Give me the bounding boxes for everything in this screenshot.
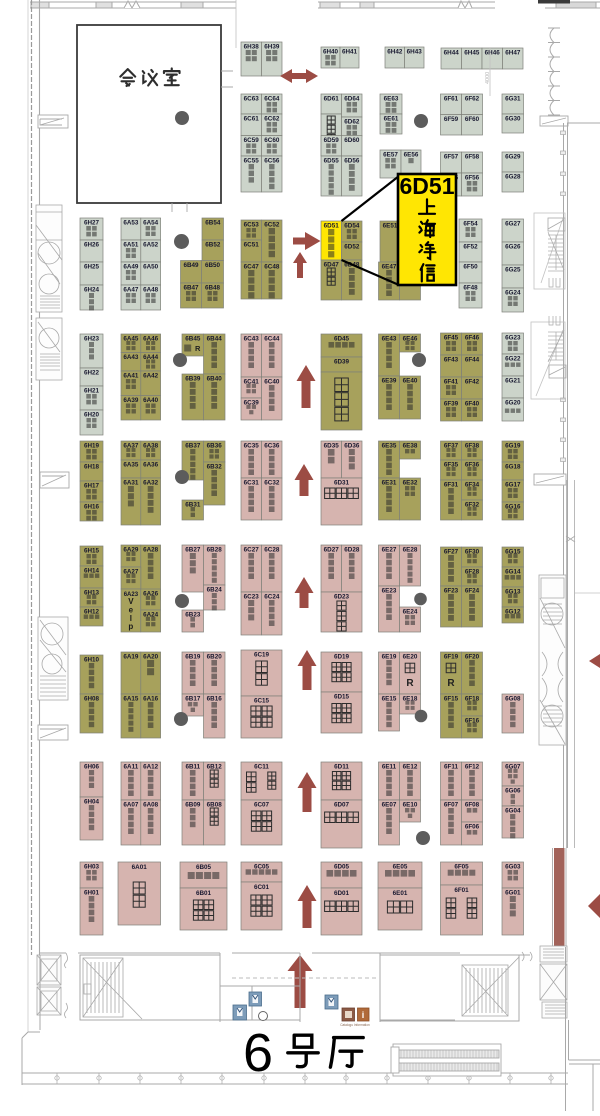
svg-text:6E12: 6E12 [403, 764, 418, 771]
svg-text:6H16: 6H16 [84, 504, 100, 511]
svg-text:6H14: 6H14 [84, 568, 100, 575]
svg-text:6D55: 6D55 [324, 158, 340, 165]
svg-text:6F52: 6F52 [463, 244, 478, 251]
svg-text:6G19: 6G19 [505, 443, 521, 450]
svg-text:6F37: 6F37 [444, 443, 459, 450]
svg-text:6F31: 6F31 [444, 482, 459, 489]
svg-text:6A32: 6A32 [143, 480, 159, 487]
svg-text:6C56: 6C56 [264, 158, 280, 165]
svg-text:6G14: 6G14 [505, 569, 521, 576]
svg-text:6B09: 6B09 [185, 802, 201, 809]
svg-text:6G08: 6G08 [505, 696, 521, 703]
svg-text:6E28: 6E28 [403, 547, 418, 554]
svg-text:6F27: 6F27 [444, 549, 459, 556]
svg-text:6E39: 6E39 [382, 378, 397, 385]
svg-text:6H45: 6H45 [464, 50, 480, 57]
svg-text:6F32: 6F32 [465, 502, 480, 509]
svg-text:6B27: 6B27 [185, 547, 201, 554]
svg-text:6C11: 6C11 [254, 764, 269, 771]
svg-text:6A50: 6A50 [143, 264, 159, 271]
svg-text:6D19: 6D19 [334, 654, 350, 661]
svg-text:6B11: 6B11 [185, 764, 200, 771]
svg-text:6E40: 6E40 [403, 378, 418, 385]
svg-text:6C01: 6C01 [254, 884, 270, 891]
svg-text:6B50: 6B50 [205, 262, 221, 269]
svg-text:6C62: 6C62 [264, 116, 280, 123]
svg-text:6G25: 6G25 [505, 267, 521, 274]
svg-text:6E32: 6E32 [403, 480, 418, 487]
svg-text:6H08: 6H08 [84, 696, 100, 703]
svg-text:6G07: 6G07 [505, 764, 521, 771]
svg-text:6D39: 6D39 [334, 359, 350, 366]
svg-text:6B16: 6B16 [207, 696, 223, 703]
svg-text:6A01: 6A01 [132, 864, 148, 871]
svg-text:6B37: 6B37 [185, 443, 201, 450]
svg-text:6H20: 6H20 [84, 412, 100, 419]
svg-text:6B49: 6B49 [183, 262, 199, 269]
svg-text:6F15: 6F15 [444, 696, 459, 703]
svg-text:6B48: 6B48 [205, 285, 221, 292]
svg-text:6C24: 6C24 [264, 594, 280, 601]
svg-text:6E05: 6E05 [393, 864, 408, 871]
svg-text:6C39: 6C39 [244, 400, 260, 407]
svg-text:6H25: 6H25 [84, 264, 100, 271]
svg-text:6B08: 6B08 [207, 802, 223, 809]
svg-text:6G24: 6G24 [505, 290, 521, 297]
svg-text:6A52: 6A52 [143, 242, 159, 249]
svg-text:6H03: 6H03 [84, 864, 100, 871]
svg-text:6D36: 6D36 [344, 443, 360, 450]
svg-text:6A53: 6A53 [123, 220, 139, 227]
svg-text:6G13: 6G13 [505, 589, 521, 596]
svg-text:6F19: 6F19 [444, 654, 459, 661]
svg-text:6A38: 6A38 [143, 443, 159, 450]
svg-text:6C41: 6C41 [244, 379, 260, 386]
svg-text:6B05: 6B05 [196, 864, 212, 871]
svg-text:6E11: 6E11 [382, 764, 397, 771]
svg-text:6B40: 6B40 [207, 376, 223, 383]
svg-text:6A15: 6A15 [123, 696, 139, 703]
svg-text:6A39: 6A39 [123, 397, 139, 404]
svg-text:6H47: 6H47 [505, 50, 521, 57]
svg-text:6F05: 6F05 [454, 864, 469, 871]
svg-text:6F30: 6F30 [465, 549, 480, 556]
svg-text:6H10: 6H10 [84, 657, 100, 664]
svg-text:6A41: 6A41 [123, 373, 139, 380]
svg-text:6A24: 6A24 [143, 612, 159, 619]
svg-text:6E57: 6E57 [383, 152, 398, 159]
svg-text:6H06: 6H06 [84, 764, 100, 771]
svg-text:6F18: 6F18 [465, 696, 480, 703]
svg-text:6H12: 6H12 [84, 609, 100, 616]
svg-text:6D35: 6D35 [324, 443, 340, 450]
svg-text:6C35: 6C35 [244, 443, 260, 450]
svg-text:6D05: 6D05 [334, 864, 350, 871]
svg-text:6A40: 6A40 [143, 397, 159, 404]
svg-text:6F20: 6F20 [465, 654, 480, 661]
svg-text:6F41: 6F41 [444, 379, 459, 386]
svg-text:6H26: 6H26 [84, 242, 100, 249]
svg-text:6F43: 6F43 [444, 357, 459, 364]
svg-text:6E46: 6E46 [403, 336, 418, 343]
svg-text:6F11: 6F11 [444, 764, 459, 771]
svg-text:6F06: 6F06 [465, 824, 480, 831]
svg-text:6H41: 6H41 [342, 49, 358, 56]
svg-text:6H38: 6H38 [244, 44, 260, 51]
svg-text:6E61: 6E61 [384, 116, 399, 123]
svg-text:6F23: 6F23 [444, 588, 459, 595]
svg-text:6C61: 6C61 [244, 116, 260, 123]
svg-text:6C60: 6C60 [264, 137, 280, 144]
svg-text:6F16: 6F16 [465, 718, 480, 725]
svg-text:6D54: 6D54 [344, 223, 360, 230]
svg-text:6E23: 6E23 [382, 588, 397, 595]
svg-text:6G31: 6G31 [505, 96, 521, 103]
svg-text:6C27: 6C27 [244, 547, 260, 554]
svg-text:6C52: 6C52 [264, 222, 280, 229]
svg-text:6D52: 6D52 [344, 244, 360, 251]
svg-text:6G22: 6G22 [505, 356, 521, 363]
svg-text:6C59: 6C59 [244, 137, 260, 144]
svg-text:6F36: 6F36 [465, 462, 480, 469]
svg-text:4000: 4000 [485, 72, 491, 84]
svg-text:6B20: 6B20 [207, 654, 223, 661]
svg-text:6D60: 6D60 [344, 137, 360, 144]
svg-text:6A12: 6A12 [143, 764, 159, 771]
svg-text:6D51: 6D51 [400, 173, 455, 199]
svg-text:6D23: 6D23 [334, 594, 350, 601]
svg-text:R: R [195, 344, 201, 353]
svg-text:6F46: 6F46 [465, 335, 480, 342]
svg-text:6F61: 6F61 [444, 96, 459, 103]
svg-text:6B32: 6B32 [207, 464, 223, 471]
svg-text:6F56: 6F56 [465, 175, 480, 182]
svg-text:6H40: 6H40 [323, 49, 339, 56]
svg-text:6D15: 6D15 [334, 694, 350, 701]
svg-text:6E24: 6E24 [403, 609, 418, 616]
svg-text:6C23: 6C23 [244, 594, 260, 601]
svg-text:6H46: 6H46 [485, 50, 501, 57]
svg-text:6A43: 6A43 [123, 354, 139, 361]
svg-text:6H44: 6H44 [444, 50, 460, 57]
svg-text:6H22: 6H22 [84, 370, 100, 377]
svg-text:6H27: 6H27 [84, 220, 100, 227]
svg-text:6F57: 6F57 [444, 154, 459, 161]
svg-text:6C31: 6C31 [244, 480, 260, 487]
svg-text:6E01: 6E01 [393, 890, 408, 897]
svg-text:6E51: 6E51 [383, 223, 398, 230]
svg-text:6E10: 6E10 [403, 802, 418, 809]
svg-text:6F58: 6F58 [465, 154, 480, 161]
svg-text:6G28: 6G28 [505, 174, 521, 181]
svg-text:6A47: 6A47 [123, 287, 139, 294]
svg-text:6B12: 6B12 [207, 764, 223, 771]
svg-text:6E56: 6E56 [404, 152, 419, 159]
svg-text:6H04: 6H04 [84, 799, 100, 806]
svg-text:6F07: 6F07 [444, 802, 459, 809]
svg-text:6C63: 6C63 [244, 96, 260, 103]
svg-text:6G17: 6G17 [505, 482, 521, 489]
svg-text:6A20: 6A20 [143, 654, 159, 661]
svg-text:6D61: 6D61 [324, 96, 340, 103]
svg-text:6F08: 6F08 [465, 802, 480, 809]
svg-text:6G26: 6G26 [505, 244, 521, 251]
svg-text:6H21: 6H21 [84, 388, 100, 395]
svg-text:6E27: 6E27 [382, 547, 397, 554]
svg-text:6H43: 6H43 [407, 49, 423, 56]
svg-text:6A07: 6A07 [123, 802, 139, 809]
svg-text:6A45: 6A45 [123, 336, 139, 343]
svg-text:6A08: 6A08 [143, 802, 159, 809]
svg-text:6F40: 6F40 [465, 401, 480, 408]
svg-text:6H23: 6H23 [84, 336, 100, 343]
svg-text:6H01: 6H01 [84, 890, 100, 897]
svg-text:6E31: 6E31 [382, 480, 397, 487]
svg-text:6A27: 6A27 [123, 569, 139, 576]
svg-text:6F39: 6F39 [444, 401, 459, 408]
svg-text:6F24: 6F24 [465, 588, 480, 595]
svg-text:6D59: 6D59 [324, 137, 340, 144]
svg-text:6A16: 6A16 [143, 696, 159, 703]
svg-text:6E18: 6E18 [403, 696, 418, 703]
svg-text:6D51: 6D51 [324, 223, 340, 230]
svg-text:6G21: 6G21 [505, 378, 521, 385]
svg-text:6C15: 6C15 [254, 698, 270, 705]
svg-text:6H18: 6H18 [84, 464, 100, 471]
svg-text:6C32: 6C32 [264, 480, 280, 487]
svg-text:6D31: 6D31 [334, 480, 350, 487]
svg-text:6G23: 6G23 [505, 335, 521, 342]
svg-text:Catalogu Information: Catalogu Information [340, 1023, 370, 1027]
svg-text:6G29: 6G29 [505, 154, 521, 161]
svg-text:6D56: 6D56 [344, 158, 360, 165]
svg-text:6G04: 6G04 [505, 808, 521, 815]
svg-text:6A51: 6A51 [123, 242, 139, 249]
svg-text:6A28: 6A28 [143, 547, 159, 554]
svg-text:6F28: 6F28 [465, 569, 480, 576]
svg-text:6E19: 6E19 [382, 654, 397, 661]
svg-text:6G06: 6G06 [505, 788, 521, 795]
svg-text:6H15: 6H15 [84, 548, 100, 555]
svg-text:6F48: 6F48 [463, 285, 478, 292]
svg-text:6A42: 6A42 [143, 373, 159, 380]
svg-text:6F45: 6F45 [444, 335, 459, 342]
svg-text:6E43: 6E43 [382, 336, 397, 343]
svg-text:6H17: 6H17 [84, 483, 100, 490]
svg-text:6A35: 6A35 [123, 462, 139, 469]
svg-text:6F50: 6F50 [463, 264, 478, 271]
svg-text:6C48: 6C48 [264, 264, 280, 271]
svg-text:6C19: 6C19 [254, 652, 270, 659]
svg-text:6C47: 6C47 [244, 264, 260, 271]
svg-text:6F60: 6F60 [465, 116, 480, 123]
svg-text:6F54: 6F54 [463, 221, 478, 228]
svg-text:6B44: 6B44 [207, 336, 223, 343]
svg-text:6B17: 6B17 [185, 696, 201, 703]
svg-text:6G18: 6G18 [505, 464, 521, 471]
svg-text:6B52: 6B52 [205, 242, 221, 249]
svg-text:6C36: 6C36 [264, 443, 280, 450]
svg-text:6F12: 6F12 [465, 764, 480, 771]
svg-text:6E07: 6E07 [382, 802, 397, 809]
svg-text:6B28: 6B28 [207, 547, 223, 554]
svg-text:6A44: 6A44 [143, 354, 159, 361]
svg-text:6C64: 6C64 [264, 96, 280, 103]
svg-text:6B39: 6B39 [185, 376, 201, 383]
svg-text:6A26: 6A26 [143, 591, 159, 598]
svg-text:6C44: 6C44 [264, 336, 280, 343]
svg-text:6B36: 6B36 [207, 443, 223, 450]
svg-text:6A48: 6A48 [143, 287, 159, 294]
svg-text:6A37: 6A37 [123, 443, 139, 450]
svg-text:6F35: 6F35 [444, 462, 459, 469]
svg-text:6G15: 6G15 [505, 549, 521, 556]
svg-text:6A11: 6A11 [124, 764, 139, 771]
svg-text:6F01: 6F01 [454, 887, 469, 894]
svg-text:6G01: 6G01 [505, 890, 521, 897]
svg-text:6F34: 6F34 [465, 482, 480, 489]
svg-text:6B47: 6B47 [183, 285, 199, 292]
svg-text:6D01: 6D01 [334, 890, 350, 897]
svg-text:6H13: 6H13 [84, 590, 100, 597]
svg-text:6F62: 6F62 [465, 96, 480, 103]
svg-text:6F59: 6F59 [444, 116, 459, 123]
svg-text:6D47: 6D47 [324, 262, 340, 269]
svg-text:6A54: 6A54 [143, 220, 159, 227]
svg-text:6A19: 6A19 [123, 654, 139, 661]
svg-text:R: R [447, 678, 455, 689]
svg-text:6D07: 6D07 [334, 802, 350, 809]
svg-text:6A46: 6A46 [143, 336, 159, 343]
svg-text:6B24: 6B24 [207, 587, 223, 594]
svg-text:6H24: 6H24 [84, 287, 100, 294]
svg-text:6F44: 6F44 [465, 357, 480, 364]
svg-text:6A36: 6A36 [143, 462, 159, 469]
svg-text:6A49: 6A49 [123, 264, 139, 271]
svg-text:6F42: 6F42 [465, 379, 480, 386]
svg-text:6D45: 6D45 [334, 336, 350, 343]
svg-text:6E35: 6E35 [382, 443, 397, 450]
svg-text:6F38: 6F38 [465, 443, 480, 450]
svg-text:6C55: 6C55 [244, 158, 260, 165]
svg-text:6C43: 6C43 [244, 336, 260, 343]
svg-text:6E15: 6E15 [382, 696, 397, 703]
svg-text:6D62: 6D62 [344, 119, 360, 126]
svg-text:6A31: 6A31 [123, 480, 139, 487]
svg-text:6D64: 6D64 [344, 96, 360, 103]
svg-text:6B19: 6B19 [185, 654, 201, 661]
svg-text:6B01: 6B01 [196, 890, 212, 897]
svg-text:6C07: 6C07 [254, 802, 270, 809]
svg-text:6G30: 6G30 [505, 116, 521, 123]
svg-text:R: R [406, 678, 414, 689]
svg-text:6G16: 6G16 [505, 504, 521, 511]
svg-text:6G03: 6G03 [505, 864, 521, 871]
svg-text:6B45: 6B45 [185, 336, 201, 343]
svg-text:6D27: 6D27 [324, 547, 340, 554]
svg-text:6G27: 6G27 [505, 221, 521, 228]
svg-text:6C40: 6C40 [264, 379, 280, 386]
svg-text:6H19: 6H19 [84, 443, 100, 450]
svg-text:6E47: 6E47 [382, 264, 397, 271]
svg-text:6C53: 6C53 [244, 222, 260, 229]
svg-text:6H39: 6H39 [264, 44, 280, 51]
svg-text:6E20: 6E20 [403, 654, 418, 661]
svg-text:i: i [362, 1010, 365, 1020]
svg-text:6C28: 6C28 [264, 547, 280, 554]
svg-text:6H42: 6H42 [387, 49, 403, 56]
svg-text:6C51: 6C51 [244, 242, 260, 249]
svg-text:6E63: 6E63 [384, 96, 399, 103]
svg-text:6D28: 6D28 [344, 547, 360, 554]
svg-text:6B54: 6B54 [205, 220, 221, 227]
svg-text:6A29: 6A29 [123, 547, 139, 554]
svg-text:6G20: 6G20 [505, 400, 521, 407]
svg-text:6D11: 6D11 [334, 764, 349, 771]
svg-text:6E38: 6E38 [403, 443, 418, 450]
svg-text:p: p [128, 622, 133, 631]
svg-text:6: 6 [243, 1023, 273, 1083]
